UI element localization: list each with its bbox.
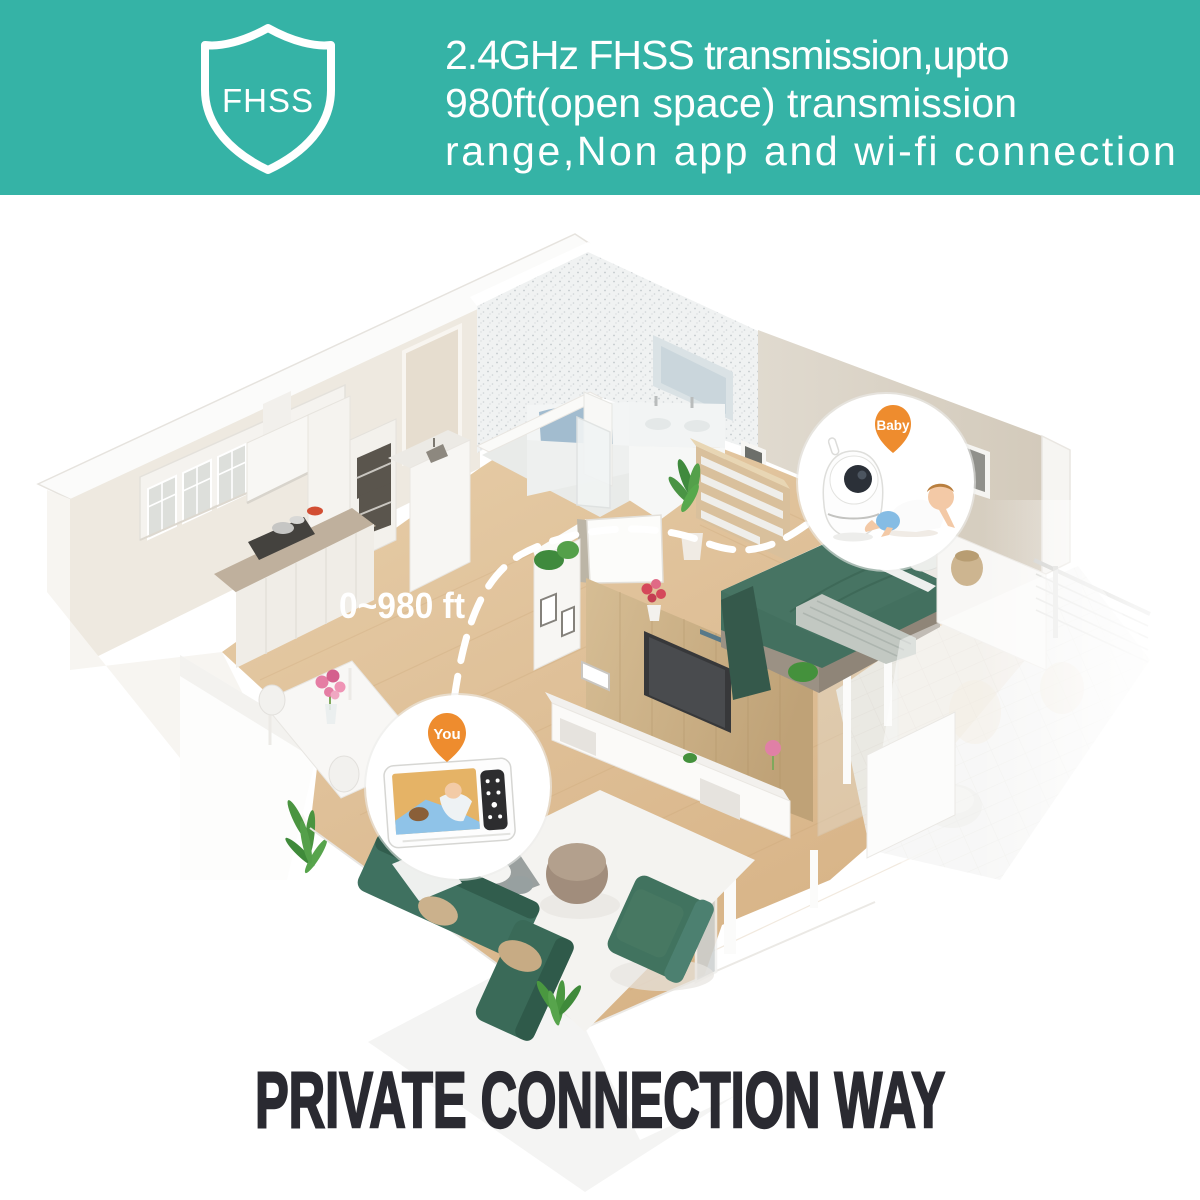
svg-text:0~980 ft: 0~980 ft — [339, 585, 465, 626]
svg-text:You: You — [433, 726, 460, 743]
svg-text:Baby: Baby — [876, 418, 910, 433]
